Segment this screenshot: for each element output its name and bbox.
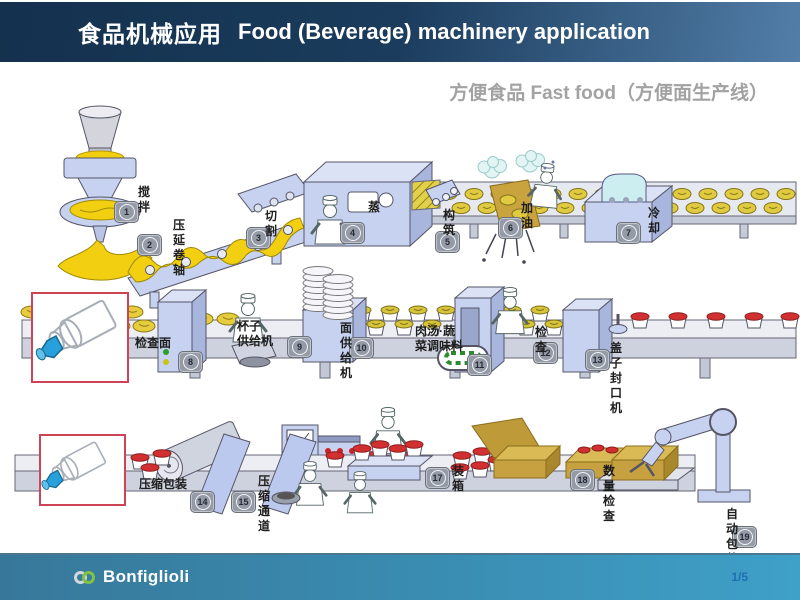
station-11-badge: 11 (467, 354, 492, 376)
station-5-label: 构筑 (443, 208, 455, 238)
station-2-label: 压延卷轴 (173, 218, 185, 278)
brand-name: Bonfiglioli (103, 567, 189, 587)
station-6-badge: 6 (498, 217, 523, 239)
gearmotor-inset-2 (39, 435, 125, 505)
station-1-label: 搅拌 (138, 185, 150, 215)
slide-header: 食品机械应用 Food (Beverage) machinery applica… (0, 2, 800, 62)
station-14-label: 压缩包装 (139, 477, 187, 492)
station-4-badge: 4 (340, 222, 365, 244)
station-6-label: 加油 (521, 201, 533, 231)
station-8-label: 检查面 (135, 336, 171, 351)
station-17-label: 装箱 (452, 464, 464, 494)
station-4-label: 蒸 (368, 200, 380, 215)
bonfiglioli-logo: Bonfiglioli (74, 567, 189, 587)
station-11-label: 肉汤·蔬 菜调味料 (415, 324, 463, 354)
rolling-conveyor (128, 218, 312, 308)
station-8-badge: 8 (178, 351, 203, 373)
station-18-badge: 18 (570, 469, 595, 491)
page-title: 食品机械应用 Food (Beverage) machinery applica… (78, 2, 650, 62)
station-13-label: 盖子封口机 (610, 341, 622, 416)
logo-ring-green-icon (82, 571, 95, 584)
station-10-badge: 10 (349, 337, 374, 359)
page-number: 1/5 (731, 570, 748, 584)
title-english: Food (Beverage) machinery application (238, 19, 650, 45)
station-12-label: 检查 (535, 325, 547, 355)
title-chinese: 食品机械应用 (78, 15, 222, 49)
station-7-badge: 7 (616, 222, 641, 244)
slide-footer: Bonfiglioli 1/5 (0, 553, 800, 600)
slide: 食品机械应用 Food (Beverage) machinery applica… (0, 0, 800, 600)
station-9-badge: 9 (287, 336, 312, 358)
station-2-badge: 2 (137, 234, 162, 256)
station-3-label: 切割 (265, 209, 277, 239)
station-9-label: 杯子 供给机 (237, 319, 273, 349)
station-13-badge: 13 (585, 349, 610, 371)
station-15-label: 压缩通道 (258, 474, 270, 534)
station-1-badge: 1 (114, 201, 139, 223)
gearmotor-inset-1 (32, 293, 128, 382)
production-line-diagram: 1 搅拌 2 压延卷轴 3 切割 4 蒸 5 构筑 6 加油 7 冷却 8 检查… (0, 70, 800, 555)
station-18-label: 数量检查 (603, 464, 615, 524)
station-7-label: 冷却 (648, 206, 660, 236)
robot-arm (598, 409, 750, 502)
station-17-badge: 17 (425, 467, 450, 489)
station-14-badge: 14 (190, 491, 215, 513)
station-15-badge: 15 (231, 491, 256, 513)
station-10-label: 面供给机 (340, 321, 352, 381)
production-line-illustration (0, 70, 800, 555)
